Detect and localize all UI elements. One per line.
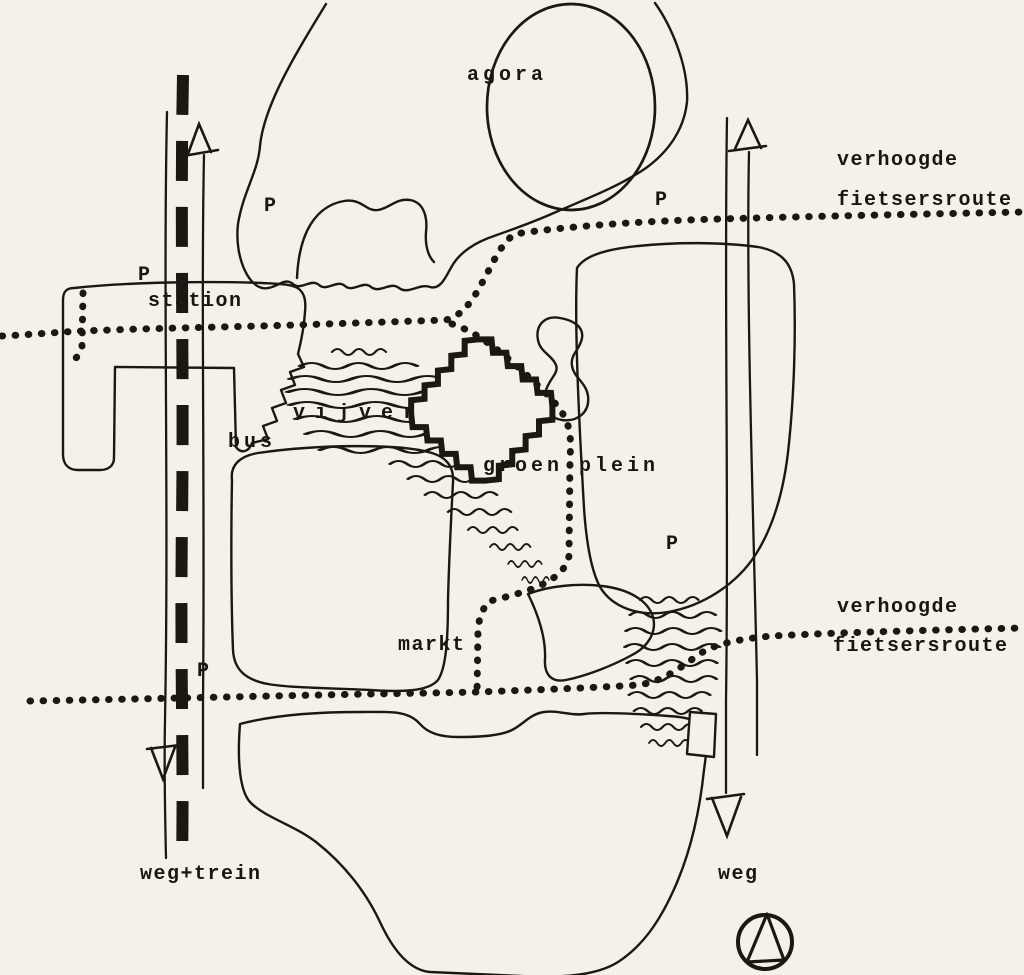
label-markt: markt bbox=[398, 634, 466, 657]
parking-marker-northeast: P bbox=[655, 189, 667, 212]
label-vijver: vijver bbox=[293, 402, 425, 425]
west-road-right-line bbox=[203, 155, 204, 788]
west-road-arrow-down-icon bbox=[147, 745, 180, 779]
agora-circle bbox=[487, 4, 655, 210]
wedge-block-outline bbox=[528, 585, 654, 681]
east-road-arrow-down-icon bbox=[707, 794, 744, 836]
label-station: station bbox=[148, 290, 243, 313]
railway-dashed-line bbox=[181, 75, 183, 860]
east-road-right-line bbox=[748, 152, 757, 755]
map-canvas: agora P P P P P station bus vijver groen… bbox=[0, 0, 1024, 975]
label-weg-trein: weg+trein bbox=[140, 863, 262, 886]
east-block-outline bbox=[576, 243, 795, 613]
site-plan-map: agora P P P P P station bus vijver groen… bbox=[0, 0, 1024, 975]
south-block-outline bbox=[239, 712, 706, 975]
pond-building-outline bbox=[687, 712, 716, 757]
map-labels: agora P P P P P station bus vijver groen… bbox=[138, 64, 1013, 886]
label-groen-plein: groen plein bbox=[483, 455, 659, 478]
label-verhoogde-north: verhoogde bbox=[837, 149, 959, 172]
agora-block-inner-contour bbox=[297, 200, 434, 278]
cycle-route-station-stub-dotted-line bbox=[70, 293, 83, 362]
label-fietsersroute-north: fietsersroute bbox=[837, 189, 1013, 212]
parking-marker-east: P bbox=[666, 533, 678, 556]
parking-marker-southwest: P bbox=[197, 660, 209, 683]
parking-marker-station: P bbox=[138, 264, 150, 287]
label-verhoogde-south: verhoogde bbox=[837, 596, 959, 619]
parking-marker-northwest: P bbox=[264, 195, 276, 218]
east-road-left-line bbox=[726, 118, 727, 793]
label-bus: bus bbox=[228, 431, 276, 454]
label-agora: agora bbox=[467, 64, 547, 87]
east-road-arrow-up-icon bbox=[729, 120, 766, 151]
west-road-arrow-up-icon bbox=[183, 124, 218, 156]
north-compass-icon bbox=[738, 914, 792, 969]
label-weg: weg bbox=[718, 863, 759, 886]
label-fietsersroute-south: fietsersroute bbox=[833, 635, 1009, 658]
agora-block-outline bbox=[237, 3, 687, 290]
